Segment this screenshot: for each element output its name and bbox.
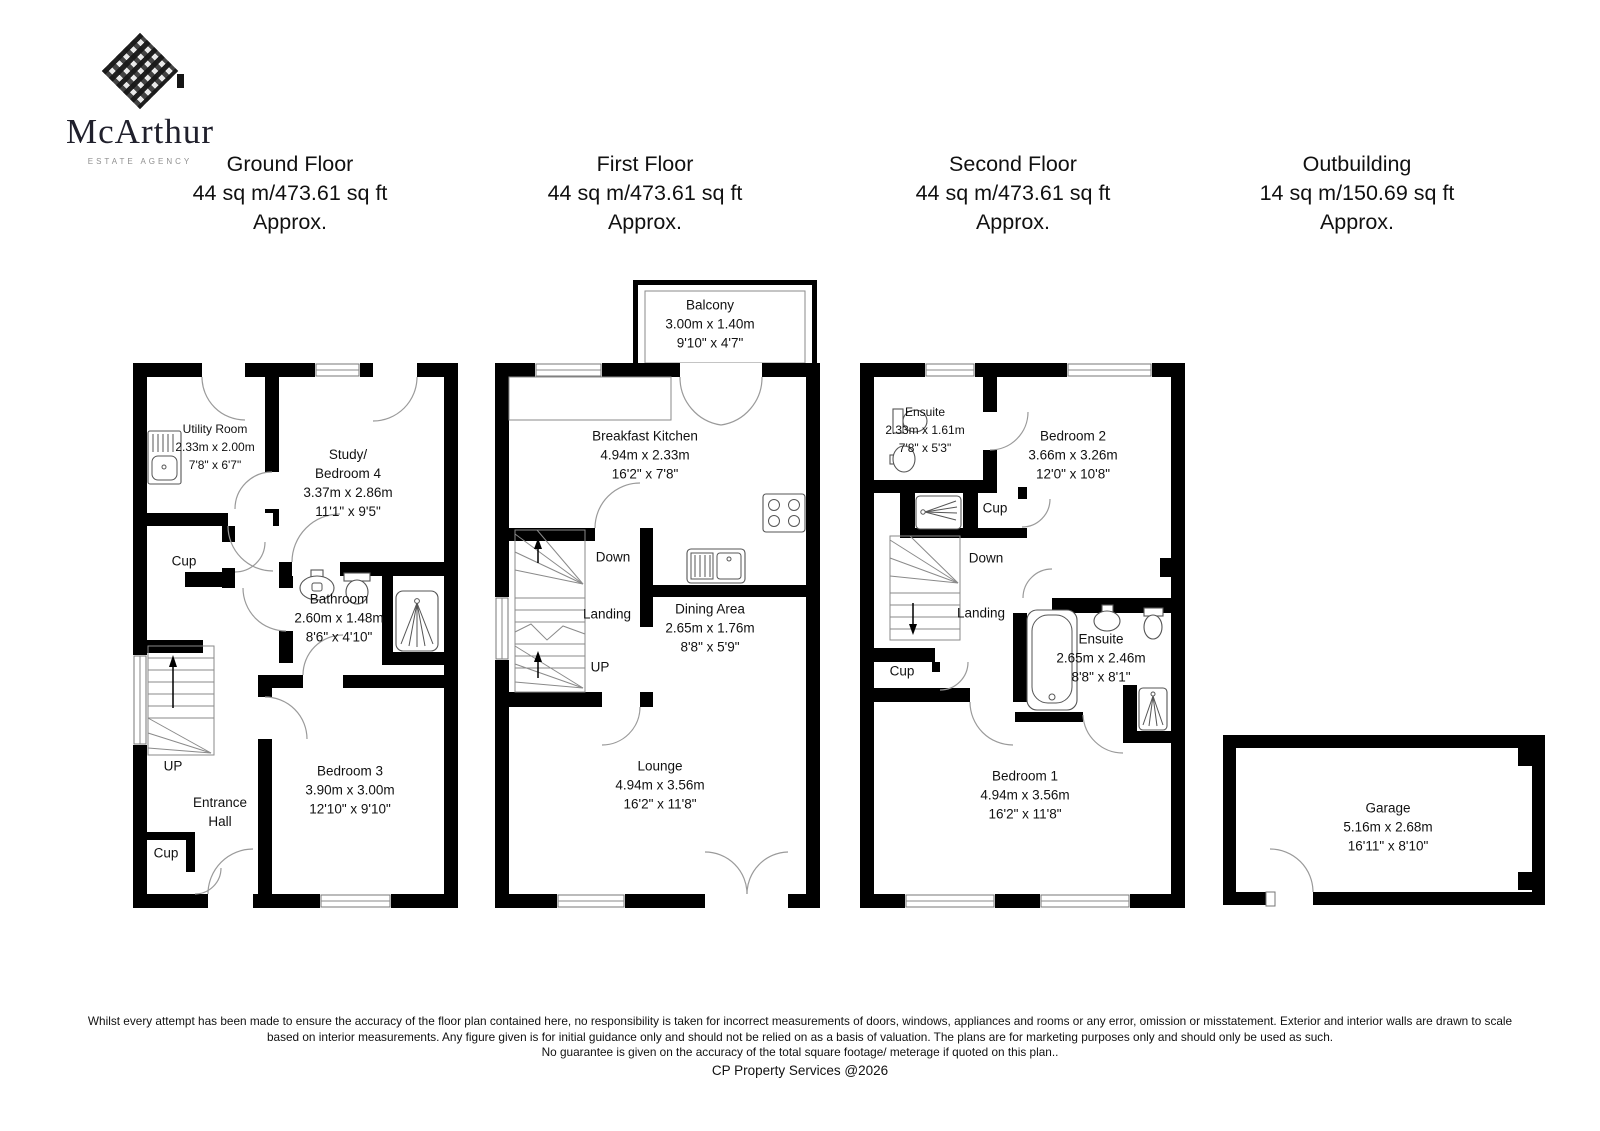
room-label-breakfast-kitchen: Breakfast Kitchen4.94m x 2.33m16'2" x 7'…: [592, 427, 698, 484]
room-label-cupboard: Cup: [172, 552, 197, 571]
stairs-icon: [515, 530, 585, 692]
room-label-bedroom2: Bedroom 23.66m x 3.26m12'0" x 10'8": [1028, 427, 1117, 484]
room-label-dining-area: Dining Area2.65m x 1.76m8'8" x 5'9": [665, 600, 754, 657]
title-ground-floor: Ground Floor 44 sq m/473.61 sq ft Approx…: [193, 150, 388, 237]
stairs-label-down: Down: [969, 549, 1004, 568]
kitchen-sink-icon: [687, 549, 745, 583]
room-label-cupboard: Cup: [983, 499, 1008, 518]
ensuite2-toilet-icon: [1144, 608, 1163, 639]
agency-name: McArthur: [40, 112, 240, 152]
room-label-study-bedroom4: Study/Bedroom 43.37m x 2.86m11'1" x 9'5": [303, 445, 392, 521]
logo-chimney-icon: [177, 74, 184, 88]
kitchen-counter: [509, 377, 671, 420]
agency-logo: McArthur ESTATE AGENCY: [40, 28, 240, 166]
floorplan-sheet: McArthur ESTATE AGENCY Ground Floor 44 s…: [0, 0, 1600, 1131]
room-label-bedroom3: Bedroom 33.90m x 3.00m12'10" x 9'10": [305, 762, 394, 819]
stairs-label-landing: Landing: [957, 604, 1005, 623]
ground-floor-plan: Utility Room2.33m x 2.00m7'8" x 6'7" Stu…: [133, 363, 458, 908]
room-label-bedroom1: Bedroom 14.94m x 3.56m16'2" x 11'8": [980, 767, 1069, 824]
title-first-floor: First Floor 44 sq m/473.61 sq ft Approx.: [548, 150, 743, 237]
first-floor-drawing: [495, 278, 820, 908]
outbuilding-plan: Garage5.16m x 2.68m16'11" x 8'10": [1200, 715, 1548, 907]
disclaimer-line3: No guarantee is given on the accuracy of…: [0, 1045, 1600, 1061]
credit-line: CP Property Services @2026: [0, 1063, 1600, 1079]
first-floor-plan: Balcony3.00m x 1.40m9'10" x 4'7" Breakfa…: [495, 278, 820, 908]
shower-icon: [916, 496, 961, 529]
stairs-label-up: UP: [591, 658, 610, 677]
room-label-utility: Utility Room2.33m x 2.00m7'8" x 6'7": [175, 420, 254, 474]
room-label-garage: Garage5.16m x 2.68m16'11" x 8'10": [1343, 799, 1432, 856]
stairs-label-up: UP: [164, 757, 183, 776]
shower2-icon: [1139, 688, 1167, 730]
shower-icon: [396, 591, 438, 651]
stairs-icon: [148, 646, 214, 755]
logo-tartan-house-icon: [102, 33, 178, 109]
stairs-icon: [890, 536, 960, 640]
title-second-floor: Second Floor 44 sq m/473.61 sq ft Approx…: [916, 150, 1111, 237]
title-outbuilding: Outbuilding 14 sq m/150.69 sq ft Approx.: [1260, 150, 1455, 237]
disclaimer-line1: Whilst every attempt has been made to en…: [0, 1014, 1600, 1030]
room-label-cupboard: Cup: [154, 844, 179, 863]
room-label-ensuite: Ensuite2.33m x 1.61m7'8" x 5'3": [885, 403, 964, 457]
room-label-entrance-hall: EntranceHall: [193, 793, 247, 831]
openings: [1270, 892, 1313, 905]
room-label-ensuite2: Ensuite2.65m x 2.46m8'8" x 8'1": [1056, 630, 1145, 687]
room-label-lounge: Lounge4.94m x 3.56m16'2" x 11'8": [615, 757, 704, 814]
room-label-bathroom: Bathroom2.60m x 1.48m8'6" x 4'10": [294, 590, 383, 647]
room-label-balcony: Balcony3.00m x 1.40m9'10" x 4'7": [665, 296, 754, 353]
disclaimer-line2: based on interior measurements. Any figu…: [0, 1030, 1600, 1046]
hob-icon: [763, 494, 805, 532]
stairs-label-down: Down: [596, 548, 631, 567]
disclaimer: Whilst every attempt has been made to en…: [0, 1014, 1600, 1078]
room-label-cupboard: Cup: [890, 662, 915, 681]
second-floor-plan: Ensuite2.33m x 1.61m7'8" x 5'3" Bedroom …: [860, 363, 1185, 908]
stairs-label-landing: Landing: [583, 605, 631, 624]
